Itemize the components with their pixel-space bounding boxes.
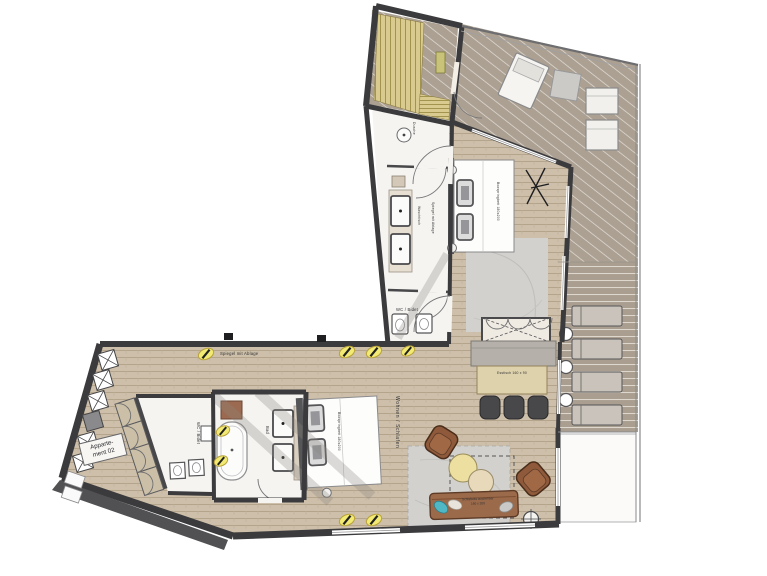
sofa: Schlafsofa ausziehbar 160 x 200 — [430, 490, 519, 519]
lounger — [572, 405, 622, 425]
lounger — [586, 88, 618, 114]
lounger — [572, 339, 622, 359]
label-wc-lower: WC / Bidet — [196, 422, 201, 445]
side-table — [560, 394, 573, 407]
label-mirror-entry: Spiegel mit Ablage — [220, 351, 259, 356]
lounger — [572, 306, 622, 326]
label-living: Wohnen / Schlafen — [394, 396, 400, 448]
vent-mark — [317, 335, 326, 342]
chair — [480, 396, 500, 419]
sauna-heater — [436, 52, 445, 73]
label-dusche: Dusche — [412, 122, 416, 135]
bidet-icon — [188, 459, 204, 476]
label-wc-upper: WC / Bidet — [396, 307, 419, 312]
floor-plan: Esstisch 160 x 90 — [0, 0, 767, 576]
label-waschtisch: Waschtisch — [417, 206, 421, 225]
chair — [528, 396, 548, 419]
terrace-table — [550, 70, 581, 101]
dining-table: Esstisch 160 x 90 — [477, 366, 547, 394]
dining-chairs — [480, 396, 548, 419]
bed-main — [448, 158, 515, 254]
label-mirror-bath: Spiegel mit Ablage — [431, 202, 435, 234]
toilet-icon — [201, 426, 212, 441]
vent-mark — [224, 333, 233, 340]
lounger — [586, 120, 618, 150]
wardrobe — [482, 318, 552, 342]
sideboard — [471, 341, 556, 366]
label-bed-main: Boxspringbett 180x200 — [496, 182, 500, 221]
sofa-label-2: 160 x 200 — [471, 501, 485, 505]
upper-vanity — [389, 176, 412, 272]
label-bad: Bad — [265, 426, 270, 435]
chair — [504, 396, 524, 419]
sauna-slat-wall — [374, 14, 424, 114]
label-bed-living: Boxspringbett 180x200 — [337, 412, 341, 451]
lounger — [572, 372, 622, 392]
floor-plan-page: Esstisch 160 x 90 — [0, 0, 767, 576]
dining-table-label: Esstisch 160 x 90 — [497, 371, 527, 375]
toilet-icon — [170, 462, 186, 479]
terrace-bottom-right — [560, 434, 636, 522]
bidet-icon — [416, 314, 432, 333]
